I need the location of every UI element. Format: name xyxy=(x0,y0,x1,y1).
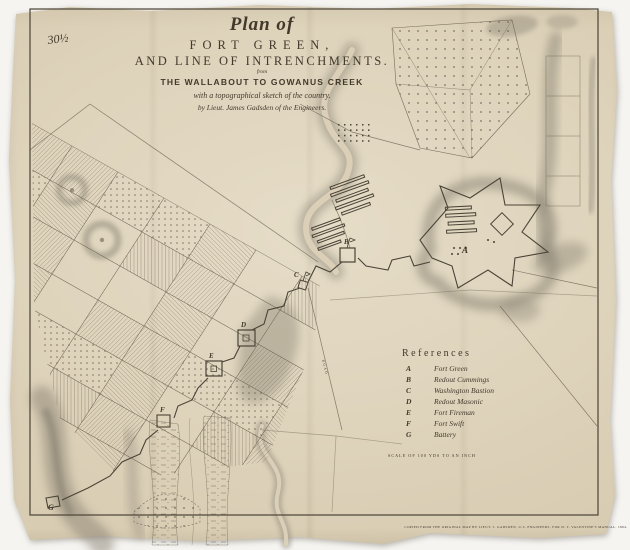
title-line-author: by Lieut. James Gadsden of the Engineers… xyxy=(198,103,326,112)
title-line-plan-of: Plan of xyxy=(229,14,295,35)
barrack-bar xyxy=(341,202,370,215)
village-block xyxy=(338,124,340,126)
field-patch xyxy=(306,430,374,490)
orchard xyxy=(392,20,530,158)
title-line-fort-green: FORT GREEN, xyxy=(190,38,335,52)
village-block xyxy=(350,129,352,131)
reference-letter: G xyxy=(406,430,412,439)
reference-letter: B xyxy=(405,375,411,384)
reference-letter: A xyxy=(405,364,411,373)
map-label-e: E xyxy=(208,352,214,360)
village-block xyxy=(356,129,358,131)
references-heading: References xyxy=(402,348,471,359)
village-block xyxy=(368,124,370,126)
village-block xyxy=(338,140,340,142)
village-block xyxy=(362,124,364,126)
reference-letter: C xyxy=(406,386,412,395)
map-label-c: C xyxy=(294,271,299,279)
title-line-intrenchments: AND LINE OF INTRENCHMENTS. xyxy=(135,54,390,68)
road-fort-southeast xyxy=(500,306,597,426)
reference-name: Redout Cummings xyxy=(433,375,489,384)
field-patch xyxy=(328,396,396,456)
fort-inner-redoubt xyxy=(491,213,514,236)
marsh-strip-2 xyxy=(203,416,231,545)
references-rows: AFort GreenBRedout CummingsCWashington B… xyxy=(405,364,494,439)
field-line-south-2 xyxy=(336,436,402,444)
village-block xyxy=(356,124,358,126)
dotted-mound xyxy=(134,494,200,528)
field-patch xyxy=(0,376,32,436)
scale-note: SCALE OF 100 YDS TO AN INCH xyxy=(388,453,476,458)
village-block xyxy=(344,124,346,126)
village-block xyxy=(356,135,358,137)
marsh-border xyxy=(189,418,194,545)
barrack-bar xyxy=(447,229,477,234)
village-block xyxy=(344,140,346,142)
field-patch xyxy=(0,470,34,530)
reference-letter: D xyxy=(405,397,412,406)
village-block xyxy=(368,140,370,142)
village-block xyxy=(350,135,352,137)
barrack-bar xyxy=(446,213,476,218)
reference-name: Fort Swift xyxy=(433,419,465,428)
title-line-sketch: with a topographical sketch of the count… xyxy=(193,91,330,100)
fort-halo-south xyxy=(500,298,540,322)
village-block xyxy=(362,129,364,131)
scanned-map-page: Plan of FORT GREEN, AND LINE OF INTRENCH… xyxy=(0,0,630,550)
village-block xyxy=(362,135,364,137)
barrack-bar xyxy=(312,218,341,231)
fort-barracks xyxy=(445,206,476,234)
village-block xyxy=(338,135,340,137)
reference-letter: E xyxy=(405,408,411,417)
imprint-line: COPIED FROM THE ORIGINAL MAP BY LIEUT. J… xyxy=(404,525,627,530)
village-block xyxy=(362,140,364,142)
map-label-b: B xyxy=(343,238,349,246)
village-block xyxy=(368,135,370,137)
map-drawing: Plan of FORT GREEN, AND LINE OF INTRENCH… xyxy=(0,0,630,550)
map-label-f: F xyxy=(160,406,165,414)
barrack-bar xyxy=(448,221,474,225)
fort-glacis-halo xyxy=(422,183,553,305)
reference-letter: F xyxy=(406,419,411,428)
right-edge-band xyxy=(590,60,594,210)
field-patch xyxy=(0,282,30,342)
barrack-bar xyxy=(445,206,471,210)
reference-name: Fort Green xyxy=(433,364,468,373)
field-patch xyxy=(304,336,372,396)
village-block xyxy=(338,129,340,131)
village-block xyxy=(344,129,346,131)
map-label-g: G xyxy=(48,503,54,512)
map-label-a: A xyxy=(461,245,468,255)
village-block xyxy=(356,140,358,142)
pencil-note: 30½ xyxy=(46,31,70,48)
fort-tree-dots xyxy=(451,239,495,255)
topright-knoll-2 xyxy=(546,15,578,29)
village-block xyxy=(350,124,352,126)
reference-name: Fort Fireman xyxy=(433,408,475,417)
village-block xyxy=(368,129,370,131)
map-label-d: D xyxy=(240,321,246,329)
field-patch xyxy=(326,302,394,362)
reference-name: Washington Bastion xyxy=(434,386,494,395)
redoubt-b xyxy=(340,248,355,262)
village-block xyxy=(350,140,352,142)
hill-top-2 xyxy=(100,238,104,242)
reference-name: Battery xyxy=(434,430,457,439)
field-patch xyxy=(0,188,28,248)
village-block xyxy=(344,135,346,137)
title-line-from: from xyxy=(257,68,267,75)
road-label: ROAD xyxy=(321,359,329,375)
reference-name: Redout Masonic xyxy=(433,397,484,406)
title-line-wallabout: THE WALLABOUT TO GOWANUS CREEK xyxy=(160,77,363,87)
